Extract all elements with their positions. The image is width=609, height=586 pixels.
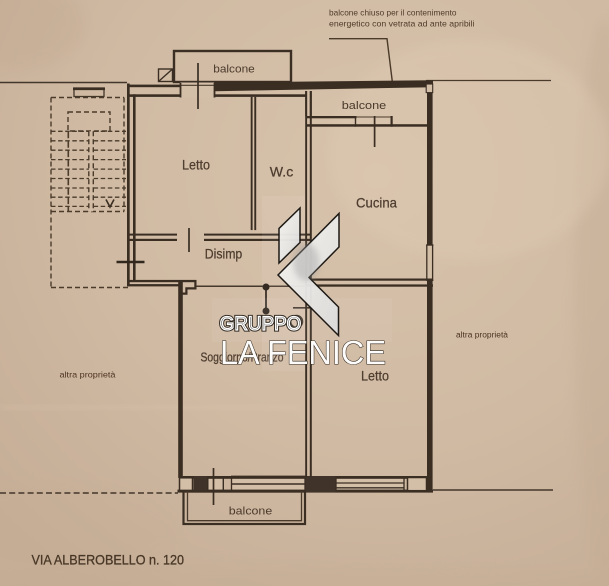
svg-text:VIA ALBEROBELLO n. 120: VIA ALBEROBELLO n. 120 (32, 552, 185, 567)
svg-text:balcone: balcone (229, 506, 273, 518)
svg-text:W.c: W.c (270, 164, 294, 180)
svg-text:LA FENICE: LA FENICE (220, 335, 386, 372)
svg-text:altra proprietà: altra proprietà (60, 371, 116, 380)
svg-text:energetico con vetrata ad ant: energetico con vetrata ad ante apribili (329, 18, 475, 28)
svg-text:balcone: balcone (213, 64, 255, 76)
svg-text:GRUPPO: GRUPPO (220, 314, 302, 335)
svg-text:Cucina: Cucina (356, 195, 397, 211)
svg-text:Letto: Letto (182, 156, 210, 172)
svg-text:balcone: balcone (342, 100, 387, 112)
svg-text:altra proprietà: altra proprietà (456, 331, 509, 340)
svg-text:balcone chiuso per il contenim: balcone chiuso per il contenimento (329, 7, 457, 17)
svg-text:Disimp: Disimp (205, 247, 243, 262)
